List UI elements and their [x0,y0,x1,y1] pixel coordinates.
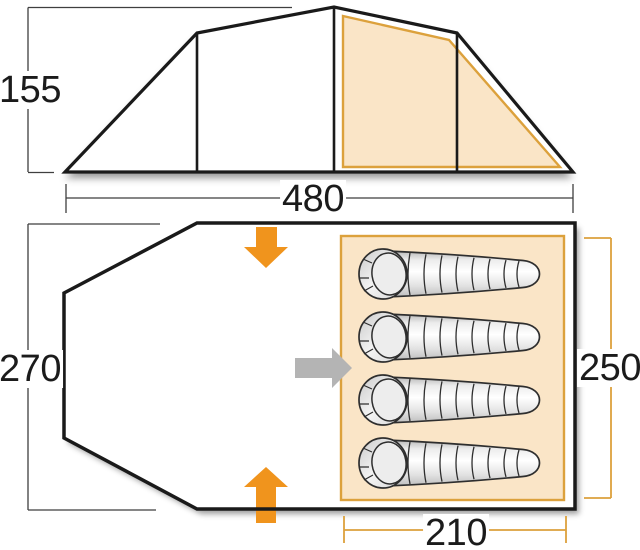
floor-plan-view [64,223,575,523]
side-elevation-view [65,7,573,172]
plan-depth-label: 270 [0,350,63,388]
bedroom-depth-label: 250 [577,349,640,387]
tent-dimension-diagram: 155 480 270 250 210 [0,0,640,550]
side-width-label: 480 [280,180,346,218]
side-height-label: 155 [0,71,63,109]
bedroom-width-label: 210 [423,514,489,550]
diagram-canvas [0,0,640,550]
